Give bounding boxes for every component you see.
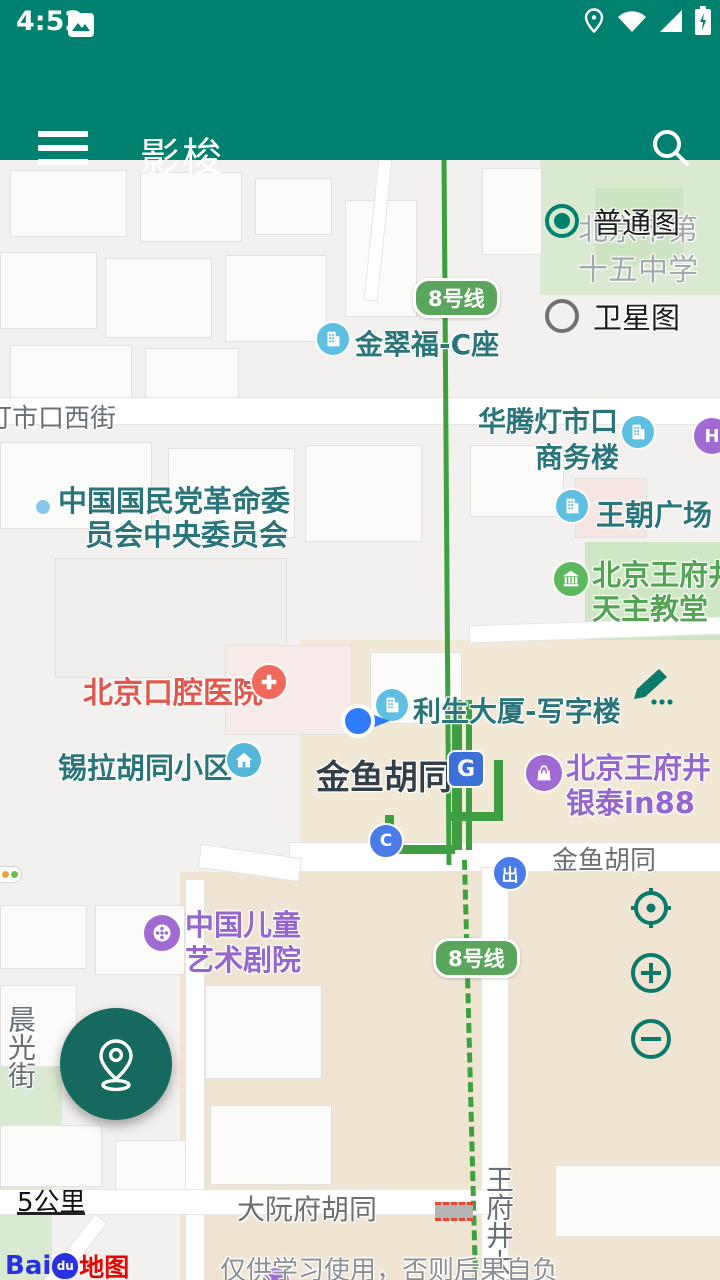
church-icon — [554, 562, 588, 596]
zoom-in-button[interactable] — [630, 952, 672, 994]
building-icon — [622, 416, 654, 448]
poi-school-line2: 十五中学 — [578, 245, 698, 289]
baidu-paw-icon: du — [52, 1253, 78, 1279]
poi-hospital: 北京口腔医院 — [83, 668, 263, 712]
road-label-dayuanfu: 大阮府胡同 — [237, 1188, 377, 1228]
poi-theatre-line2: 艺术剧院 — [185, 937, 301, 979]
layer-option-satellite[interactable]: 卫星图 — [545, 295, 680, 337]
disclaimer-text: 仅供学习使用，否则后果自负 — [220, 1250, 558, 1280]
building-block — [0, 905, 87, 969]
poi-huateng-line1: 华腾灯市口 — [478, 400, 618, 440]
app-bar: 影梭 — [0, 45, 720, 160]
wifi-icon — [616, 8, 648, 38]
poi-xila: 锡拉胡同小区 — [58, 745, 232, 787]
layer-option-satellite-label: 卫星图 — [593, 295, 680, 337]
metro-line8-badge: 8号线 — [413, 278, 500, 318]
hospital-cross-icon — [252, 665, 286, 699]
page-title: 影梭 — [140, 125, 224, 183]
building-block — [205, 985, 322, 1079]
shopping-bag-icon — [526, 755, 562, 791]
building-block — [10, 345, 132, 399]
hotel-icon: H — [694, 418, 720, 454]
search-button[interactable] — [648, 125, 692, 169]
building-block — [210, 1105, 332, 1185]
metro-line8-badge: 8号线 — [433, 938, 520, 978]
traffic-light-indicator — [0, 866, 22, 883]
pencil-icon — [628, 665, 674, 707]
building-icon — [556, 490, 588, 522]
poi-station-jinyuhutong: 金鱼胡同 — [316, 750, 452, 799]
zoom-out-button[interactable] — [630, 1018, 672, 1060]
app-screen: 北京市第 十五中学 8号线 8号线 金翠福-C座 灯市口西街 华腾灯市口 商务楼… — [0, 0, 720, 1280]
screenshot-icon — [68, 13, 94, 37]
poi-church-line2: 天主教堂 — [592, 586, 708, 628]
building-block — [105, 258, 212, 338]
building-block — [145, 348, 239, 400]
subway-logo-icon: G — [447, 750, 485, 788]
house-icon — [227, 743, 261, 777]
layer-option-normal[interactable]: 普通图 — [545, 200, 680, 242]
road-label-chenguang: 晨光街 — [0, 1005, 40, 1089]
scale-bar — [17, 1212, 85, 1215]
building-block — [255, 178, 332, 235]
baidu-logo-bai: Bai — [5, 1251, 51, 1280]
baidu-logo: Bai du 地图 — [5, 1248, 129, 1280]
poi-huateng-line2: 商务楼 — [535, 436, 619, 476]
current-location-marker — [338, 700, 398, 742]
radio-unselected-icon — [545, 299, 579, 333]
battery-charging-icon — [694, 6, 712, 40]
building-block — [555, 1165, 720, 1237]
poi-yintai-line2: 银泰in88 — [566, 780, 695, 822]
map-canvas[interactable]: 北京市第 十五中学 8号线 8号线 金翠福-C座 灯市口西街 华腾灯市口 商务楼… — [0, 160, 720, 1280]
exit-chu-badge: 出 — [492, 855, 528, 891]
menu-button[interactable] — [38, 131, 88, 167]
crossing-marker — [435, 1202, 473, 1221]
poi-jincuifu: 金翠福-C座 — [355, 323, 499, 363]
road-label-dengshikou: 灯市口西街 — [0, 398, 116, 435]
film-reel-icon — [144, 915, 180, 951]
baidu-logo-ditu: 地图 — [79, 1248, 129, 1280]
layer-option-normal-label: 普通图 — [593, 200, 680, 242]
location-status-icon — [582, 7, 606, 39]
building-block — [0, 252, 97, 329]
building-block — [225, 255, 327, 342]
road-label-jinyu: 金鱼胡同 — [552, 840, 656, 877]
locate-button[interactable] — [630, 887, 672, 929]
building-block — [0, 1125, 102, 1187]
my-location-fab[interactable] — [60, 1008, 172, 1120]
status-bar: 4:52 — [0, 0, 720, 45]
building-block — [482, 168, 542, 255]
building-block — [10, 170, 127, 237]
building-icon — [317, 323, 349, 355]
building-block — [305, 445, 422, 542]
exit-c-badge: C — [368, 823, 404, 859]
signal-icon — [658, 8, 684, 38]
poi-dot — [36, 500, 50, 514]
route-line — [494, 760, 503, 821]
radio-selected-icon — [545, 204, 579, 238]
poi-kmt-line2: 员会中央委员会 — [85, 512, 288, 554]
poi-wangchao: 王朝广场 — [596, 492, 712, 534]
poi-lisheng: 利生大厦-写字楼 — [413, 690, 621, 730]
